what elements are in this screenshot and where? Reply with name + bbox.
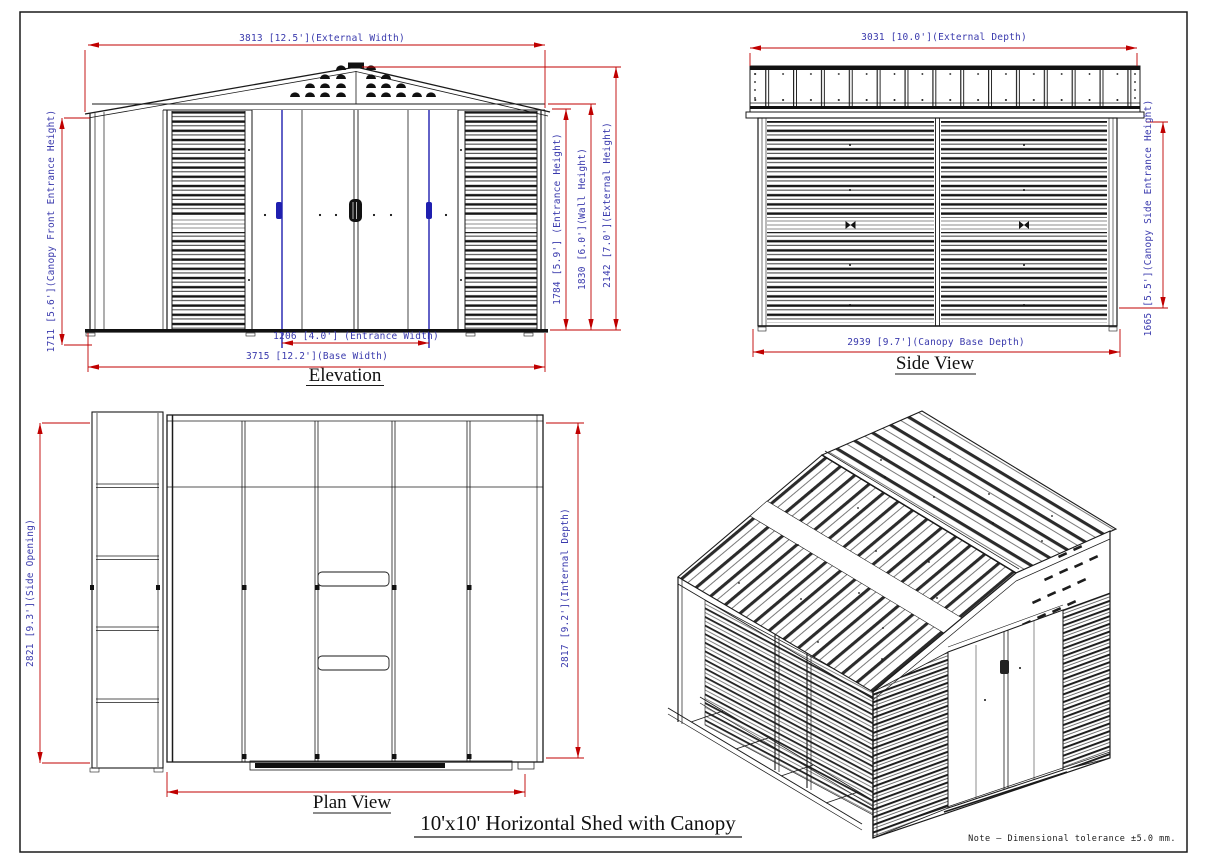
iso-wall-strip-right — [1063, 593, 1110, 770]
plan-cross-bar-upper — [318, 572, 389, 586]
iso-door-handle — [1000, 660, 1009, 674]
isometric-view — [668, 411, 1116, 838]
dim-external-depth: 3031 [10.0'](External Depth) — [750, 32, 1137, 66]
side-roof-band — [746, 66, 1144, 118]
dim-text-canopy-front-entrance-height: 1711 [5.6'](Canopy Front Entrance Height… — [46, 110, 57, 353]
title-block: 10'x10' Horizontal Shed with Canopy Note… — [414, 811, 1176, 844]
dim-text-wall-height: 1830 [6.0'](Wall Height) — [577, 148, 588, 290]
side-walls — [758, 118, 1117, 331]
drawing-title: 10'x10' Horizontal Shed with Canopy — [420, 811, 736, 835]
canopy-front-post — [90, 112, 104, 331]
dim-text-canopy-side-entrance-height: 1665 [5.5'](Canopy Side Entrance Height) — [1143, 100, 1154, 337]
dim-text-side-opening: 2821 [9.3'](Side Opening) — [25, 519, 36, 667]
dim-entrance-width: 1206 [4.0'] (Entrance Width) — [273, 331, 439, 343]
side-view-label: Side View — [896, 353, 974, 374]
dim-canopy-side-entrance-height: 1665 [5.5'](Canopy Side Entrance Height) — [1119, 100, 1168, 337]
plan-roof-beams — [242, 421, 472, 762]
elevation-roof — [85, 63, 550, 119]
door-handle-right — [426, 202, 432, 219]
dim-text-entrance-height: 1784 [5.9'] (Entrance Height) — [552, 133, 563, 305]
plan-canopy-ladder — [90, 412, 163, 772]
dim-text-external-width: 3813 [12.5'](External Width) — [239, 33, 405, 44]
plan-view-label: Plan View — [313, 792, 391, 813]
drawing-sheet: 3813 [12.5'](External Width) 1711 [5.6']… — [0, 0, 1209, 862]
dim-text-external-depth: 3031 [10.0'](External Depth) — [861, 32, 1027, 43]
right-wall-panel — [465, 111, 537, 330]
dim-internal-depth: 2817 [9.2'](Internal Depth) — [546, 423, 584, 758]
gable-vents — [290, 65, 436, 97]
tolerance-note: Note – Dimensional tolerance ±5.0 mm. — [968, 834, 1176, 844]
left-wall-panel — [172, 111, 245, 330]
dim-text-external-height: 2142 [7.0'](External Height) — [602, 122, 613, 288]
dim-text-entrance-width: 1206 [4.0'] (Entrance Width) — [273, 331, 439, 342]
side-eave-trim — [746, 112, 1144, 118]
dim-side-opening: 2821 [9.3'](Side Opening) — [25, 423, 90, 763]
dim-external-width: 3813 [12.5'](External Width) — [85, 33, 545, 112]
ridge-cap — [348, 63, 364, 69]
double-doors — [252, 110, 458, 348]
door-latch-center — [349, 199, 362, 222]
side-view: 3031 [10.0'](External Depth) 2939 [9.7']… — [746, 32, 1168, 374]
plan-cross-bar-lower — [318, 656, 389, 670]
dim-canopy-front-entrance-height: 1711 [5.6'](Canopy Front Entrance Height… — [46, 110, 92, 353]
door-handle-left — [276, 202, 282, 219]
plan-view: 2821 [9.3'](Side Opening) 2817 [9.2'](In… — [25, 412, 584, 813]
dim-text-canopy-base-depth: 2939 [9.7'](Canopy Base Depth) — [847, 337, 1025, 348]
dim-entrance-height: 1784 [5.9'] (Entrance Height) — [552, 109, 571, 330]
dim-text-internal-depth: 2817 [9.2'](Internal Depth) — [560, 508, 571, 668]
elevation-label: Elevation — [309, 365, 382, 386]
plan-shed-body — [167, 415, 543, 770]
elevation-view: 3813 [12.5'](External Width) 1711 [5.6']… — [46, 33, 621, 386]
dim-text-base-width: 3715 [12.2'](Base Width) — [246, 351, 388, 362]
